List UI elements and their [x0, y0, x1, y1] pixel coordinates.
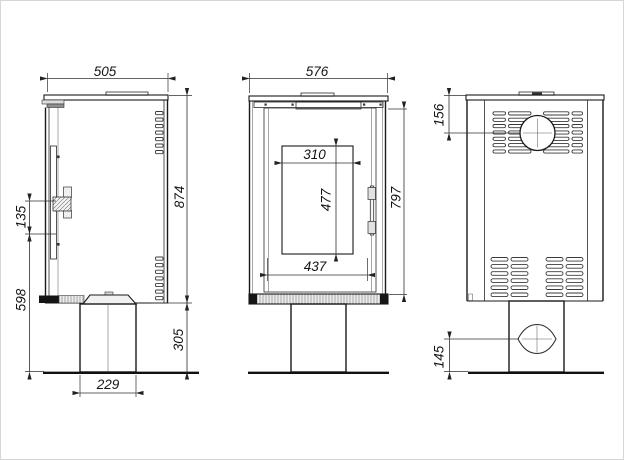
vent-slots-side-lower: [156, 257, 164, 300]
vent-slot: [491, 293, 508, 297]
vent-slot: [491, 286, 508, 290]
dim-flue-position-label: 156: [432, 103, 447, 126]
handle-mount-lower: [368, 222, 376, 234]
dim-door-width-label: 437: [304, 259, 327, 274]
door-top-trim: [42, 100, 64, 104]
screw: [265, 104, 267, 106]
vent-slot: [546, 265, 563, 269]
vent-slot: [493, 131, 506, 134]
vent-slot: [156, 264, 164, 267]
door-top-seal: [47, 104, 64, 108]
dim-glass-width: 310: [282, 147, 353, 163]
dim-front-width-label: 576: [306, 64, 329, 79]
back-view: 156 145: [432, 92, 605, 373]
vent-slot: [544, 112, 570, 115]
dim-side-pedestal-depth: 229: [80, 375, 136, 397]
dim-air-inlet-label: 145: [432, 345, 447, 368]
vent-slot: [509, 112, 532, 115]
door-handle-side: [53, 187, 72, 218]
vent-slot: [156, 277, 164, 280]
plinth-end-cap: [249, 294, 257, 304]
vent-slot: [572, 131, 583, 134]
handle-bracket-upper: [64, 187, 72, 198]
plinth-end-cap: [380, 294, 388, 304]
base-plinth-front: [249, 294, 388, 304]
dim-pedestal-height-label: 305: [171, 328, 186, 351]
dim-side-height-label: 874: [172, 186, 187, 209]
vent-slots-back-lower: [491, 258, 583, 297]
back-base: [468, 301, 604, 373]
flue-outlet: [520, 116, 555, 151]
vent-slot: [572, 112, 583, 115]
screw: [292, 104, 294, 106]
vent-slot: [156, 270, 164, 273]
vent-slot: [156, 118, 164, 121]
vent-slot: [491, 279, 508, 283]
vent-slot: [566, 258, 583, 262]
vent-slot: [546, 272, 563, 276]
door-latch: [53, 197, 71, 211]
dim-flue-position: 156: [432, 96, 521, 134]
door-handle-front: [368, 186, 376, 235]
dim-door-width: 437: [268, 258, 368, 281]
vent-slot: [511, 286, 528, 290]
pedestal-top-stone: [83, 295, 136, 304]
ash-lip: [39, 296, 59, 304]
vent-slot: [511, 272, 528, 276]
vent-slot: [546, 279, 563, 283]
vent-slot: [566, 272, 583, 276]
vent-slot: [566, 265, 583, 269]
handle-mount-upper: [368, 188, 376, 200]
corner-foot: [469, 294, 473, 301]
dim-side-pedestal-height: 305: [171, 303, 187, 372]
vent-slot: [572, 144, 583, 147]
dim-front-height-label: 797: [389, 186, 404, 209]
vent-slot: [156, 144, 164, 147]
top-plate: [466, 95, 604, 100]
dim-glass-height-label: 477: [319, 188, 334, 211]
dim-front-width: 576: [250, 64, 388, 93]
dim-handle-floor-label: 598: [14, 288, 29, 311]
hinge-pin: [57, 156, 60, 159]
vent-slot: [566, 286, 583, 290]
vent-slot: [491, 258, 508, 262]
vent-slot: [509, 150, 532, 153]
dim-pedestal-depth-label: 229: [96, 377, 120, 392]
dim-glass-width-label: 310: [303, 147, 326, 162]
hinge-pin: [57, 243, 60, 246]
vent-slot: [156, 257, 164, 260]
vent-slot: [572, 118, 583, 121]
dim-air-inlet-position: 145: [432, 339, 520, 372]
vent-slot: [566, 279, 583, 283]
vent-slot: [493, 137, 506, 140]
vent-slot: [572, 137, 583, 140]
vent-slot: [544, 150, 570, 153]
vent-slot: [546, 293, 563, 297]
dim-side-depth: 505: [48, 64, 169, 92]
vent-slot: [156, 125, 164, 128]
vent-slot: [491, 272, 508, 276]
vent-slot: [156, 112, 164, 115]
vent-slot: [511, 258, 528, 262]
front-base: [248, 294, 389, 373]
dim-handle-length-label: 135: [14, 205, 29, 228]
vent-slot: [156, 297, 164, 300]
vent-slot: [566, 293, 583, 297]
drawing-canvas: 505 874 305 135 598 229: [0, 0, 624, 460]
vent-slot: [546, 286, 563, 290]
vent-slot: [546, 258, 563, 262]
top-plate: [44, 95, 168, 100]
screw: [363, 104, 365, 106]
vent-slot: [493, 112, 506, 115]
side-view: 505 874 305 135 598 229: [14, 64, 200, 397]
vent-slot: [156, 283, 164, 286]
dim-glass-height: 477: [319, 146, 337, 254]
vent-slot: [493, 125, 506, 128]
screw: [380, 104, 382, 106]
front-view: 576 797 310 477 437: [248, 64, 407, 373]
handle-bracket-lower: [64, 211, 72, 219]
vent-slot: [156, 131, 164, 134]
vent-slot: [511, 279, 528, 283]
vent-slot: [491, 265, 508, 269]
stove-dimension-drawing: 505 874 305 135 598 229: [1, 1, 624, 460]
vent-slot: [156, 151, 164, 154]
vent-slot: [493, 150, 506, 153]
vent-slot: [493, 144, 506, 147]
pedestal-column-front: [291, 304, 346, 372]
top-plate: [249, 96, 388, 101]
dim-front-body-height: 797: [388, 109, 407, 295]
base-plinth-side: [59, 296, 84, 304]
dim-side-handle-length: 135: [14, 201, 57, 234]
vent-slot: [511, 265, 528, 269]
vent-slot: [511, 293, 528, 297]
vent-slot: [572, 125, 583, 128]
vent-slots-side-upper: [156, 112, 164, 154]
vent-slot: [572, 150, 583, 153]
vent-slot: [156, 138, 164, 141]
vent-slot: [156, 290, 164, 293]
dim-side-depth-label: 505: [94, 64, 117, 79]
door-glass: [282, 146, 353, 254]
vent-slot: [493, 118, 506, 121]
